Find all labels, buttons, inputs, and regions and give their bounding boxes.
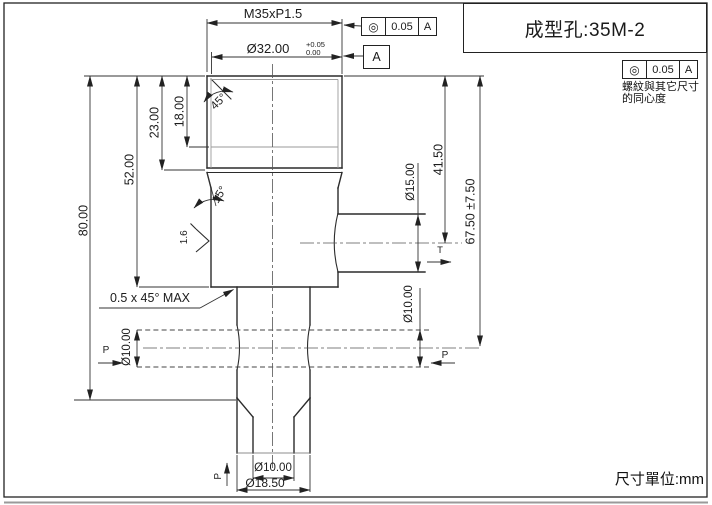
dim-bottom-hole-label: Ø10.00: [249, 462, 297, 474]
datum-label: A: [372, 50, 380, 64]
part-title: 成型孔:35M-2: [525, 15, 646, 42]
hidden-lines: [137, 330, 430, 367]
surface-finish-value: 1.6: [180, 225, 191, 249]
dim-thread-depth-full-label: 23.00: [148, 101, 161, 145]
center-lines: [143, 64, 482, 468]
section-mark-p-left: P: [100, 346, 112, 357]
tolerance-value: 0.05: [385, 18, 418, 35]
dim-cross-hole-right-label: Ø10.00: [403, 280, 415, 328]
title-block: 成型孔:35M-2: [463, 3, 707, 53]
dim-height-with-tol-label: 67.50 ±7.50: [464, 172, 477, 252]
section-mark-t: T: [434, 246, 446, 256]
section-mark-p-bottom: P: [214, 470, 225, 482]
tolerance-value: 0.05: [646, 61, 679, 78]
dim-bottom-outer-label: Ø18.50: [238, 477, 292, 490]
tolerance-note-line1: 螺紋與其它尺寸: [622, 81, 699, 93]
dim-outer-diameter-tolerance: +0.05 0.00: [306, 41, 325, 56]
tolerance-datum-ref: A: [679, 61, 697, 78]
concentricity-icon: ◎: [362, 18, 385, 35]
dim-height-to-side-hole-label: 41.50: [432, 138, 445, 182]
tolerance-datum-ref: A: [418, 18, 436, 35]
section-mark-p-right: P: [439, 351, 451, 362]
dim-thread-label: M35xP1.5: [217, 7, 329, 21]
drawing-sheet: 成型孔:35M-2 ◎ 0.05 A A ◎ 0.05 A 螺紋與其它尺寸 的同…: [0, 0, 712, 505]
sheet-border: [4, 3, 708, 503]
dim-side-hole-label: Ø15.00: [405, 158, 417, 206]
dim-height-overall-label: 80.00: [77, 199, 90, 243]
thread-lines: [211, 80, 338, 169]
tolerance-lower: 0.00: [306, 49, 325, 57]
dim-cross-hole-left-label: Ø10.00: [121, 323, 133, 371]
datum-flag: A: [363, 45, 390, 69]
drawing-linework: [0, 0, 712, 505]
dim-thread-depth-label: 18.00: [173, 90, 186, 134]
chamfer-note: 0.5 x 45° MAX: [99, 292, 201, 305]
tolerance-frame-side: ◎ 0.05 A: [622, 60, 698, 79]
dimension-lines: [74, 19, 484, 492]
part-outline: [207, 76, 425, 453]
tolerance-note: 螺紋與其它尺寸 的同心度: [622, 81, 699, 105]
dim-height-body-label: 52.00: [123, 148, 136, 192]
dim-outer-diameter-label: Ø32.00: [232, 42, 304, 56]
tolerance-frame-top: ◎ 0.05 A: [361, 17, 437, 36]
tolerance-note-line2: 的同心度: [622, 93, 699, 105]
units-note: 尺寸單位:mm: [546, 468, 704, 489]
concentricity-icon: ◎: [623, 61, 646, 78]
